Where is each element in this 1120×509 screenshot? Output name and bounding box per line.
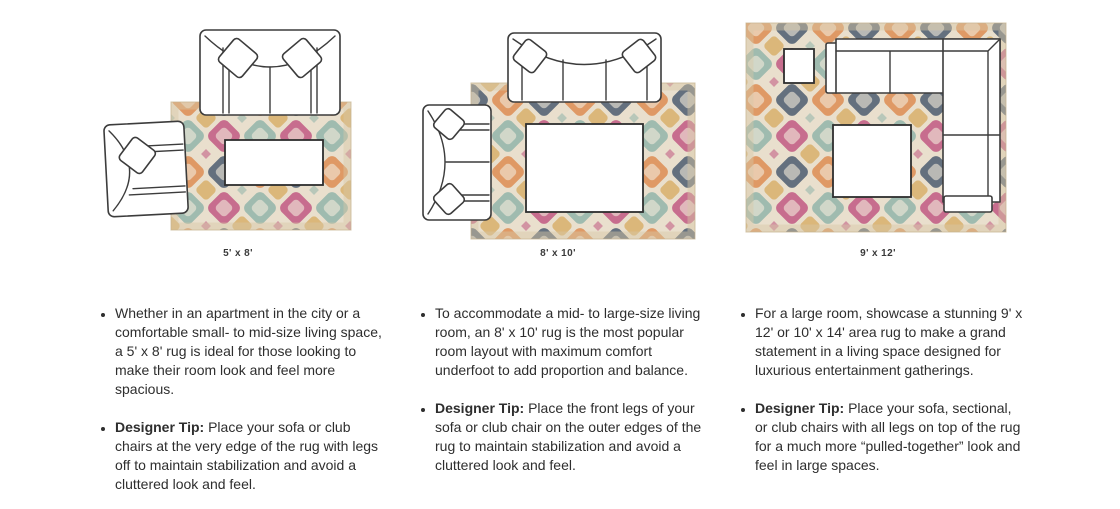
notes-list-9x12: For a large room, showcase a stunning 9'… [738,304,1026,475]
side-table [784,49,814,83]
notes-list-8x10: To accommodate a mid- to large-size livi… [418,304,706,475]
diagram-5x8-svg [98,10,378,250]
column-8x10: 8' x 10' To accommodate a mid- to large-… [418,10,706,494]
sofa-top-view [508,33,661,102]
rug-size-caption: 8' x 10' [418,248,698,259]
designer-tip: Designer Tip: Place your sofa or club ch… [115,418,386,494]
rug-description-text: Whether in an apartment in the city or a… [115,305,382,397]
diagram-9x12-svg [738,10,1018,250]
designer-tip-label: Designer Tip: [755,400,844,416]
rug-description-text: For a large room, showcase a stunning 9'… [755,305,1022,378]
rug-description: To accommodate a mid- to large-size livi… [435,304,706,380]
sectional-vertical-section [943,39,1000,202]
rug-description-text: To accommodate a mid- to large-size livi… [435,305,700,378]
coffee-table [526,124,643,212]
designer-tip: Designer Tip: Place the front legs of yo… [435,399,706,475]
club-chair-top-view [104,121,189,217]
rug-diagram-8x10: 8' x 10' [418,10,698,258]
coffee-table [833,125,911,197]
rug-description: For a large room, showcase a stunning 9'… [755,304,1026,380]
coffee-table [225,140,323,185]
rug-diagram-9x12: 9' x 12' [738,10,1018,258]
rug-diagram-5x8: 5' x 8' [98,10,378,258]
column-9x12: 9' x 12' For a large room, showcase a st… [738,10,1026,494]
diagram-8x10-svg [418,10,698,250]
rug-size-caption: 9' x 12' [738,248,1018,259]
designer-tip-label: Designer Tip: [435,400,524,416]
designer-tip-label: Designer Tip: [115,419,204,435]
rug-size-guide: 5' x 8' Whether in an apartment in the c… [0,0,1120,509]
sectional-bottom-arm [944,196,992,212]
designer-tip: Designer Tip: Place your sofa, sectional… [755,399,1026,475]
loveseat-top-view [423,105,491,220]
sofa-top-view [200,30,340,115]
rug-description: Whether in an apartment in the city or a… [115,304,386,399]
notes-list-5x8: Whether in an apartment in the city or a… [98,304,386,494]
rug-size-caption: 5' x 8' [98,248,378,259]
column-5x8: 5' x 8' Whether in an apartment in the c… [98,10,386,509]
